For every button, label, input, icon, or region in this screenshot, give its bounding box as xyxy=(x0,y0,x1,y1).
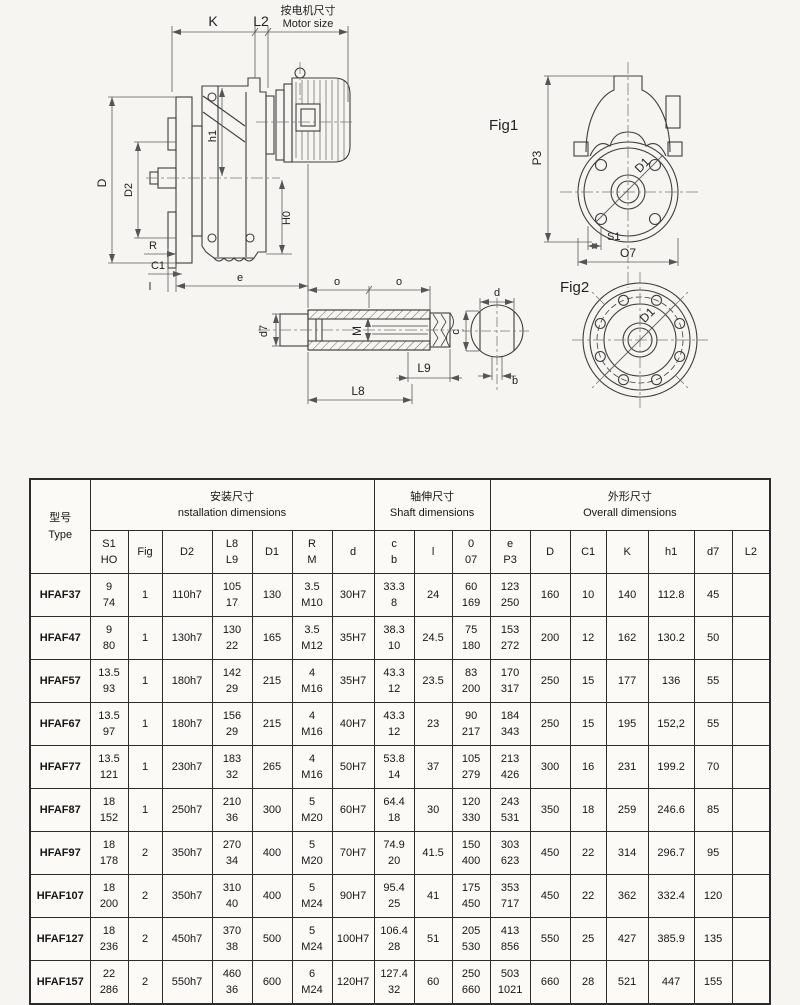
dim-d-label: D xyxy=(95,178,109,187)
table-cell: 195 xyxy=(606,703,648,746)
column-header: Fig xyxy=(128,531,162,574)
table-cell: 30H7 xyxy=(332,574,374,617)
table-cell: 427 xyxy=(606,918,648,961)
table-cell: 362 xyxy=(606,875,648,918)
table-cell xyxy=(732,789,770,832)
table-cell: 156 29 xyxy=(212,703,252,746)
dim-b-label: b xyxy=(512,375,518,387)
table-cell: 1 xyxy=(128,574,162,617)
table-cell: 123 250 xyxy=(490,574,530,617)
dim-l9-label: L9 xyxy=(417,361,431,375)
side-view-dimensions xyxy=(108,26,348,292)
table-cell: 16 xyxy=(570,746,606,789)
table-cell: 332.4 xyxy=(648,875,694,918)
table-cell: 259 xyxy=(606,789,648,832)
table-subheader-row: S1 HOFigD2L8 L9D1R Mdc bl0 07e P3DC1Kh1d… xyxy=(30,531,770,574)
group-header-shaft: 轴伸尺寸 Shaft dimensions xyxy=(374,479,490,531)
table-cell: 230h7 xyxy=(162,746,212,789)
column-header: d xyxy=(332,531,374,574)
model-type: HFAF47 xyxy=(30,617,90,660)
table-cell: 55 xyxy=(694,660,732,703)
table-cell: 136 xyxy=(648,660,694,703)
table-cell: 90 217 xyxy=(452,703,490,746)
table-cell: 112.8 xyxy=(648,574,694,617)
fig1-label: Fig1 xyxy=(489,117,518,134)
table-cell: 303 623 xyxy=(490,832,530,875)
table-cell: 265 xyxy=(252,746,292,789)
model-type: HFAF97 xyxy=(30,832,90,875)
table-row: HFAF7713.5 1211230h7183 322654 M1650H753… xyxy=(30,746,770,789)
column-header: 0 07 xyxy=(452,531,490,574)
table-cell: 22 xyxy=(570,875,606,918)
table-cell: 15 xyxy=(570,660,606,703)
table-cell: 170 317 xyxy=(490,660,530,703)
technical-drawing: K L2 按电机尺寸 Motor size D D2 h1 H0 R C1 l … xyxy=(0,0,800,470)
table-cell xyxy=(732,660,770,703)
table-cell: 40H7 xyxy=(332,703,374,746)
motor-size-label-cn: 按电机尺寸 xyxy=(281,3,336,17)
model-type: HFAF57 xyxy=(30,660,90,703)
table-cell: 1 xyxy=(128,746,162,789)
column-header: D xyxy=(530,531,570,574)
table-cell: 30 xyxy=(414,789,452,832)
dim-o-left-label: o xyxy=(334,276,340,288)
table-row: HFAF15722 2862550h7460 366006 M24120H712… xyxy=(30,961,770,1005)
table-cell: 350 xyxy=(530,789,570,832)
table-cell: 38.3 10 xyxy=(374,617,414,660)
table-cell: 177 xyxy=(606,660,648,703)
table-cell: 400 xyxy=(252,875,292,918)
table-row: HFAF379 741110h7105 171303.5 M1030H733.3… xyxy=(30,574,770,617)
table-cell: 370 38 xyxy=(212,918,252,961)
table-cell: 100H7 xyxy=(332,918,374,961)
table-cell: 70 xyxy=(694,746,732,789)
table-cell xyxy=(732,703,770,746)
column-header: l xyxy=(414,531,452,574)
table-cell: 310 40 xyxy=(212,875,252,918)
dim-d-bore-label: d xyxy=(494,287,500,299)
table-cell: 350h7 xyxy=(162,832,212,875)
column-header: D1 xyxy=(252,531,292,574)
table-cell: 450 xyxy=(530,875,570,918)
table-cell: 13.5 93 xyxy=(90,660,128,703)
dim-m-label: M xyxy=(350,326,364,336)
table-cell: 183 32 xyxy=(212,746,252,789)
dim-h0-label: H0 xyxy=(281,211,293,225)
model-type: HFAF87 xyxy=(30,789,90,832)
table-cell: 413 856 xyxy=(490,918,530,961)
table-cell: 150 400 xyxy=(452,832,490,875)
table-cell: 130h7 xyxy=(162,617,212,660)
table-cell: 5 M20 xyxy=(292,832,332,875)
table-cell xyxy=(732,961,770,1005)
table-cell: 95 xyxy=(694,832,732,875)
table-cell: 2 xyxy=(128,875,162,918)
table-cell: 18 200 xyxy=(90,875,128,918)
column-header: c b xyxy=(374,531,414,574)
table-cell: 18 236 xyxy=(90,918,128,961)
column-header: L8 L9 xyxy=(212,531,252,574)
table-cell: 447 xyxy=(648,961,694,1005)
table-cell: 460 36 xyxy=(212,961,252,1005)
model-type: HFAF107 xyxy=(30,875,90,918)
motor-size-label-en: Motor size xyxy=(283,18,334,30)
dim-e-label: e xyxy=(237,272,243,284)
table-cell: 55 xyxy=(694,703,732,746)
table-cell: 250h7 xyxy=(162,789,212,832)
table-cell: 660 xyxy=(530,961,570,1005)
model-type: HFAF77 xyxy=(30,746,90,789)
table-cell: 135 xyxy=(694,918,732,961)
table-row: HFAF5713.5 931180h7142 292154 M1635H743.… xyxy=(30,660,770,703)
table-cell: 64.4 18 xyxy=(374,789,414,832)
table-cell: 385.9 xyxy=(648,918,694,961)
table-cell: 35H7 xyxy=(332,660,374,703)
dim-k-label: K xyxy=(208,13,218,29)
table-cell: 1 xyxy=(128,703,162,746)
dim-r-label: R xyxy=(149,240,157,252)
model-type: HFAF67 xyxy=(30,703,90,746)
table-cell: 600 xyxy=(252,961,292,1005)
table-cell: 215 xyxy=(252,703,292,746)
table-cell: 75 180 xyxy=(452,617,490,660)
dim-h1-label: h1 xyxy=(207,130,219,142)
table-cell: 50 xyxy=(694,617,732,660)
table-cell: 105 17 xyxy=(212,574,252,617)
column-header: L2 xyxy=(732,531,770,574)
table-cell: 13.5 121 xyxy=(90,746,128,789)
column-header: C1 xyxy=(570,531,606,574)
table-cell: 51 xyxy=(414,918,452,961)
table-cell: 250 xyxy=(530,660,570,703)
table-cell: 95.4 25 xyxy=(374,875,414,918)
table-cell: 243 531 xyxy=(490,789,530,832)
table-cell: 130 xyxy=(252,574,292,617)
table-cell: 199.2 xyxy=(648,746,694,789)
column-header: R M xyxy=(292,531,332,574)
table-row: HFAF479 801130h7130 221653.5 M1235H738.3… xyxy=(30,617,770,660)
group-header-overall: 外形尺寸 Overall dimensions xyxy=(490,479,770,531)
fig2-labels: Fig2 D1 xyxy=(560,279,658,326)
table-cell: 6 M24 xyxy=(292,961,332,1005)
table-cell: 130 22 xyxy=(212,617,252,660)
table-cell: 184 343 xyxy=(490,703,530,746)
dim-d2-label: D2 xyxy=(123,183,135,197)
table-cell: 353 717 xyxy=(490,875,530,918)
column-header: K xyxy=(606,531,648,574)
dim-p3-label: P3 xyxy=(530,150,544,165)
table-cell: 314 xyxy=(606,832,648,875)
table-cell: 120 xyxy=(694,875,732,918)
group-header-installation: 安装尺寸 nstallation dimensions xyxy=(90,479,374,531)
table-cell: 18 xyxy=(570,789,606,832)
table-cell: 140 xyxy=(606,574,648,617)
table-cell: 175 450 xyxy=(452,875,490,918)
table-row: HFAF10718 2002350h7310 404005 M2490H795.… xyxy=(30,875,770,918)
table-cell: 550h7 xyxy=(162,961,212,1005)
column-header: D2 xyxy=(162,531,212,574)
table-cell: 550 xyxy=(530,918,570,961)
column-header: e P3 xyxy=(490,531,530,574)
dim-d1-fig1-label: D1 xyxy=(632,155,653,176)
table-cell: 33.3 8 xyxy=(374,574,414,617)
table-cell: 50H7 xyxy=(332,746,374,789)
table-cell xyxy=(732,832,770,875)
table-row: HFAF9718 1782350h7270 344005 M2070H774.9… xyxy=(30,832,770,875)
table-cell: 2 xyxy=(128,832,162,875)
table-cell: 15 xyxy=(570,703,606,746)
dim-c1-label: C1 xyxy=(151,260,165,272)
model-type: HFAF37 xyxy=(30,574,90,617)
table-cell: 210 36 xyxy=(212,789,252,832)
table-cell: 350h7 xyxy=(162,875,212,918)
table-cell: 43.3 12 xyxy=(374,703,414,746)
table-cell xyxy=(732,918,770,961)
dim-o7-label: O7 xyxy=(620,246,636,260)
table-cell: 153 272 xyxy=(490,617,530,660)
table-cell: 1 xyxy=(128,617,162,660)
table-cell: 296.7 xyxy=(648,832,694,875)
table-cell: 250 660 xyxy=(452,961,490,1005)
table-cell: 5 M24 xyxy=(292,918,332,961)
table-cell: 3.5 M12 xyxy=(292,617,332,660)
table-cell: 9 74 xyxy=(90,574,128,617)
table-cell: 18 178 xyxy=(90,832,128,875)
model-type: HFAF127 xyxy=(30,918,90,961)
table-cell: 521 xyxy=(606,961,648,1005)
table-cell: 300 xyxy=(252,789,292,832)
table-cell: 43.3 12 xyxy=(374,660,414,703)
side-view-centerlines xyxy=(146,62,354,178)
table-cell: 23 xyxy=(414,703,452,746)
table-cell: 24.5 xyxy=(414,617,452,660)
table-cell: 12 xyxy=(570,617,606,660)
table-cell: 2 xyxy=(128,918,162,961)
table-cell: 250 xyxy=(530,703,570,746)
table-cell: 400 xyxy=(252,832,292,875)
table-cell: 165 xyxy=(252,617,292,660)
table-cell: 41.5 xyxy=(414,832,452,875)
table-cell: 105 279 xyxy=(452,746,490,789)
table-cell: 4 M16 xyxy=(292,703,332,746)
table-cell: 127.4 32 xyxy=(374,961,414,1005)
table-cell: 60 xyxy=(414,961,452,1005)
dim-l8-label: L8 xyxy=(351,384,365,398)
table-cell: 22 xyxy=(570,832,606,875)
dimension-table: 型号 Type 安装尺寸 nstallation dimensions 轴伸尺寸… xyxy=(29,478,771,1005)
table-cell: 110h7 xyxy=(162,574,212,617)
table-cell: 4 M16 xyxy=(292,746,332,789)
table-cell: 10 xyxy=(570,574,606,617)
dim-c-label: c xyxy=(450,329,462,335)
table-cell xyxy=(732,875,770,918)
table-row: HFAF6713.5 971180h7156 292154 M1640H743.… xyxy=(30,703,770,746)
table-cell: 106.4 28 xyxy=(374,918,414,961)
table-cell: 9 80 xyxy=(90,617,128,660)
table-row: HFAF12718 2362450h7370 385005 M24100H710… xyxy=(30,918,770,961)
table-cell: 450h7 xyxy=(162,918,212,961)
table-cell: 22 286 xyxy=(90,961,128,1005)
fig2-label: Fig2 xyxy=(560,279,589,296)
table-cell: 4 M16 xyxy=(292,660,332,703)
table-cell: 35H7 xyxy=(332,617,374,660)
dim-s1-label: S1 xyxy=(607,231,620,243)
dim-d7-label: d7 xyxy=(258,325,270,337)
table-cell: 60H7 xyxy=(332,789,374,832)
column-header: h1 xyxy=(648,531,694,574)
type-column-header: 型号 Type xyxy=(30,479,90,574)
dim-l-label: l xyxy=(149,281,151,293)
table-cell: 41 xyxy=(414,875,452,918)
table-cell: 1 xyxy=(128,789,162,832)
table-cell: 130.2 xyxy=(648,617,694,660)
table-cell: 450 xyxy=(530,832,570,875)
table-cell: 60 169 xyxy=(452,574,490,617)
table-cell: 74.9 20 xyxy=(374,832,414,875)
table-cell: 13.5 97 xyxy=(90,703,128,746)
table-cell: 162 xyxy=(606,617,648,660)
table-cell: 70H7 xyxy=(332,832,374,875)
table-cell: 5 M24 xyxy=(292,875,332,918)
table-cell: 213 426 xyxy=(490,746,530,789)
table-cell: 152,2 xyxy=(648,703,694,746)
table-cell: 90H7 xyxy=(332,875,374,918)
shaft-labels: o o d7 M L9 L8 xyxy=(258,276,431,398)
dim-o-right-label: o xyxy=(396,276,402,288)
table-cell: 503 1021 xyxy=(490,961,530,1005)
table-group-header-row: 型号 Type 安装尺寸 nstallation dimensions 轴伸尺寸… xyxy=(30,479,770,531)
table-cell: 37 xyxy=(414,746,452,789)
table-cell: 45 xyxy=(694,574,732,617)
bore-dimensions xyxy=(466,298,516,380)
table-cell: 23.5 xyxy=(414,660,452,703)
table-cell: 246.6 xyxy=(648,789,694,832)
table-cell xyxy=(732,746,770,789)
table-cell: 28 xyxy=(570,961,606,1005)
table-cell: 18 152 xyxy=(90,789,128,832)
table-cell: 300 xyxy=(530,746,570,789)
table-cell xyxy=(732,574,770,617)
table-cell: 160 xyxy=(530,574,570,617)
table-row: HFAF8718 1521250h7210 363005 M2060H764.4… xyxy=(30,789,770,832)
table-cell: 5 M20 xyxy=(292,789,332,832)
table-cell: 270 34 xyxy=(212,832,252,875)
table-cell: 215 xyxy=(252,660,292,703)
table-cell: 500 xyxy=(252,918,292,961)
table-cell: 53.8 14 xyxy=(374,746,414,789)
table-cell: 142 29 xyxy=(212,660,252,703)
column-header: S1 HO xyxy=(90,531,128,574)
dim-l2-label: L2 xyxy=(253,13,269,29)
table-cell: 231 xyxy=(606,746,648,789)
table-cell: 205 530 xyxy=(452,918,490,961)
table-cell: 24 xyxy=(414,574,452,617)
motor-terminal-box xyxy=(296,104,320,131)
table-cell: 2 xyxy=(128,961,162,1005)
table-cell: 200 xyxy=(530,617,570,660)
column-header: d7 xyxy=(694,531,732,574)
table-cell: 180h7 xyxy=(162,660,212,703)
table-cell: 155 xyxy=(694,961,732,1005)
table-cell: 25 xyxy=(570,918,606,961)
table-cell: 3.5 M10 xyxy=(292,574,332,617)
table-cell: 83 200 xyxy=(452,660,490,703)
side-view-labels: K L2 按电机尺寸 Motor size D D2 h1 H0 R C1 l … xyxy=(95,3,336,293)
table-cell: 120H7 xyxy=(332,961,374,1005)
table-cell: 180h7 xyxy=(162,703,212,746)
bore-centerlines xyxy=(462,298,532,392)
table-cell xyxy=(732,617,770,660)
table-cell: 120 330 xyxy=(452,789,490,832)
table-cell: 85 xyxy=(694,789,732,832)
table-cell: 1 xyxy=(128,660,162,703)
model-type: HFAF157 xyxy=(30,961,90,1005)
